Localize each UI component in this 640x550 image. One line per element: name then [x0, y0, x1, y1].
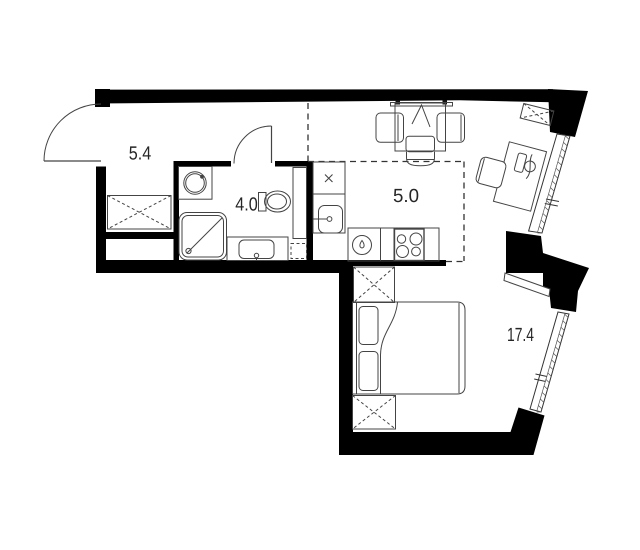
svg-text:5.4: 5.4	[129, 143, 152, 164]
svg-text:17.4: 17.4	[507, 325, 534, 346]
svg-text:5.0: 5.0	[393, 186, 419, 207]
svg-text:4.0: 4.0	[235, 194, 258, 215]
